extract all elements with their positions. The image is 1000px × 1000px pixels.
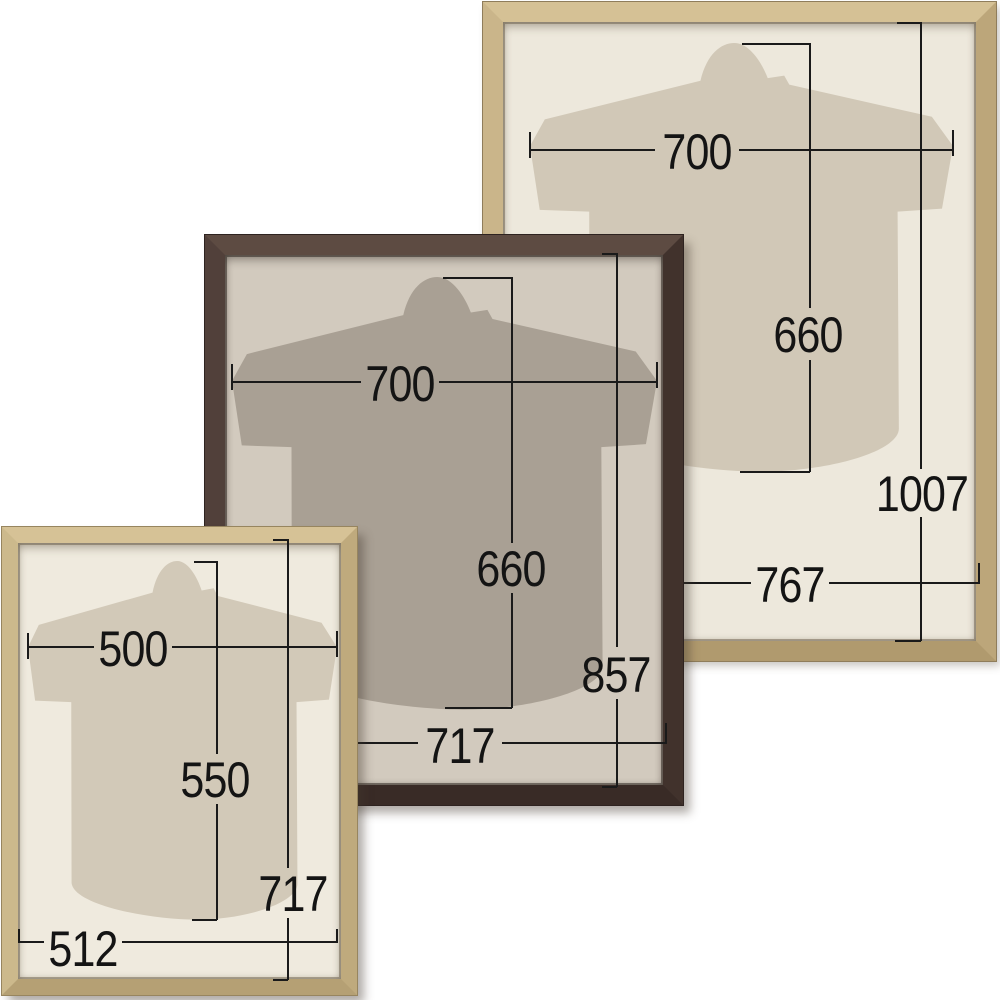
dim-large-frame-height-label: 1007 <box>876 469 968 519</box>
dim-small-frame-width-label: 512 <box>48 924 117 974</box>
dimension-tick <box>665 723 667 743</box>
dimension-tick <box>194 561 217 563</box>
dimension-tick <box>336 929 338 942</box>
dim-medium-shirt-width-label: 700 <box>365 359 434 409</box>
dimension-line <box>511 277 513 543</box>
dimension-tick <box>529 132 531 158</box>
dimension-line <box>172 646 337 648</box>
dimension-tick <box>273 539 288 541</box>
dimension-tick <box>273 979 288 981</box>
dimension-tick <box>445 707 512 709</box>
dimension-line <box>439 381 657 383</box>
dimension-tick <box>602 253 617 255</box>
frame-small: 500 550 717 512 <box>2 527 357 995</box>
dimension-tick <box>27 633 29 659</box>
dimension-line <box>920 22 922 469</box>
dimension-tick <box>192 919 217 921</box>
dimension-line <box>809 360 811 472</box>
dimension-line <box>287 539 289 868</box>
dimension-line <box>216 561 218 754</box>
dimension-line <box>809 43 811 308</box>
dimension-tick <box>742 43 810 45</box>
dimension-line <box>616 253 618 647</box>
dimension-line <box>287 918 289 980</box>
dim-medium-shirt-height-label: 660 <box>476 544 545 594</box>
dimension-line <box>232 381 361 383</box>
dimension-line <box>502 742 667 744</box>
dimension-line <box>216 804 218 920</box>
dim-medium-frame-width-label: 717 <box>425 721 494 771</box>
dim-small-shirt-width-label: 500 <box>98 624 167 674</box>
dimension-tick <box>18 929 20 942</box>
dimension-tick <box>443 277 512 279</box>
dimension-line <box>920 517 922 641</box>
dimension-line <box>511 593 513 708</box>
dimension-tick <box>602 786 617 788</box>
dim-large-frame-width-label: 767 <box>755 560 824 610</box>
dimension-tick <box>895 640 921 642</box>
dimension-line <box>530 149 655 151</box>
dimension-tick <box>897 22 921 24</box>
dimension-tick <box>656 362 658 388</box>
dimension-tick <box>231 364 233 390</box>
dimension-line <box>829 582 980 584</box>
dimension-tick <box>978 563 980 583</box>
dimension-tick <box>740 471 810 473</box>
dimension-line <box>122 941 338 943</box>
dim-large-shirt-width-label: 700 <box>662 127 731 177</box>
dimension-tick <box>336 631 338 657</box>
dimension-tick <box>952 130 954 156</box>
product-dimension-diagram: 700 660 1007 767 700 <box>0 0 1000 1000</box>
dimension-line <box>28 646 94 648</box>
dim-medium-frame-height-label: 857 <box>581 650 650 700</box>
dim-small-frame-height-label: 717 <box>258 869 327 919</box>
dim-small-shirt-height-label: 550 <box>180 755 249 805</box>
dim-large-shirt-height-label: 660 <box>773 310 842 360</box>
dimension-line <box>18 941 44 943</box>
